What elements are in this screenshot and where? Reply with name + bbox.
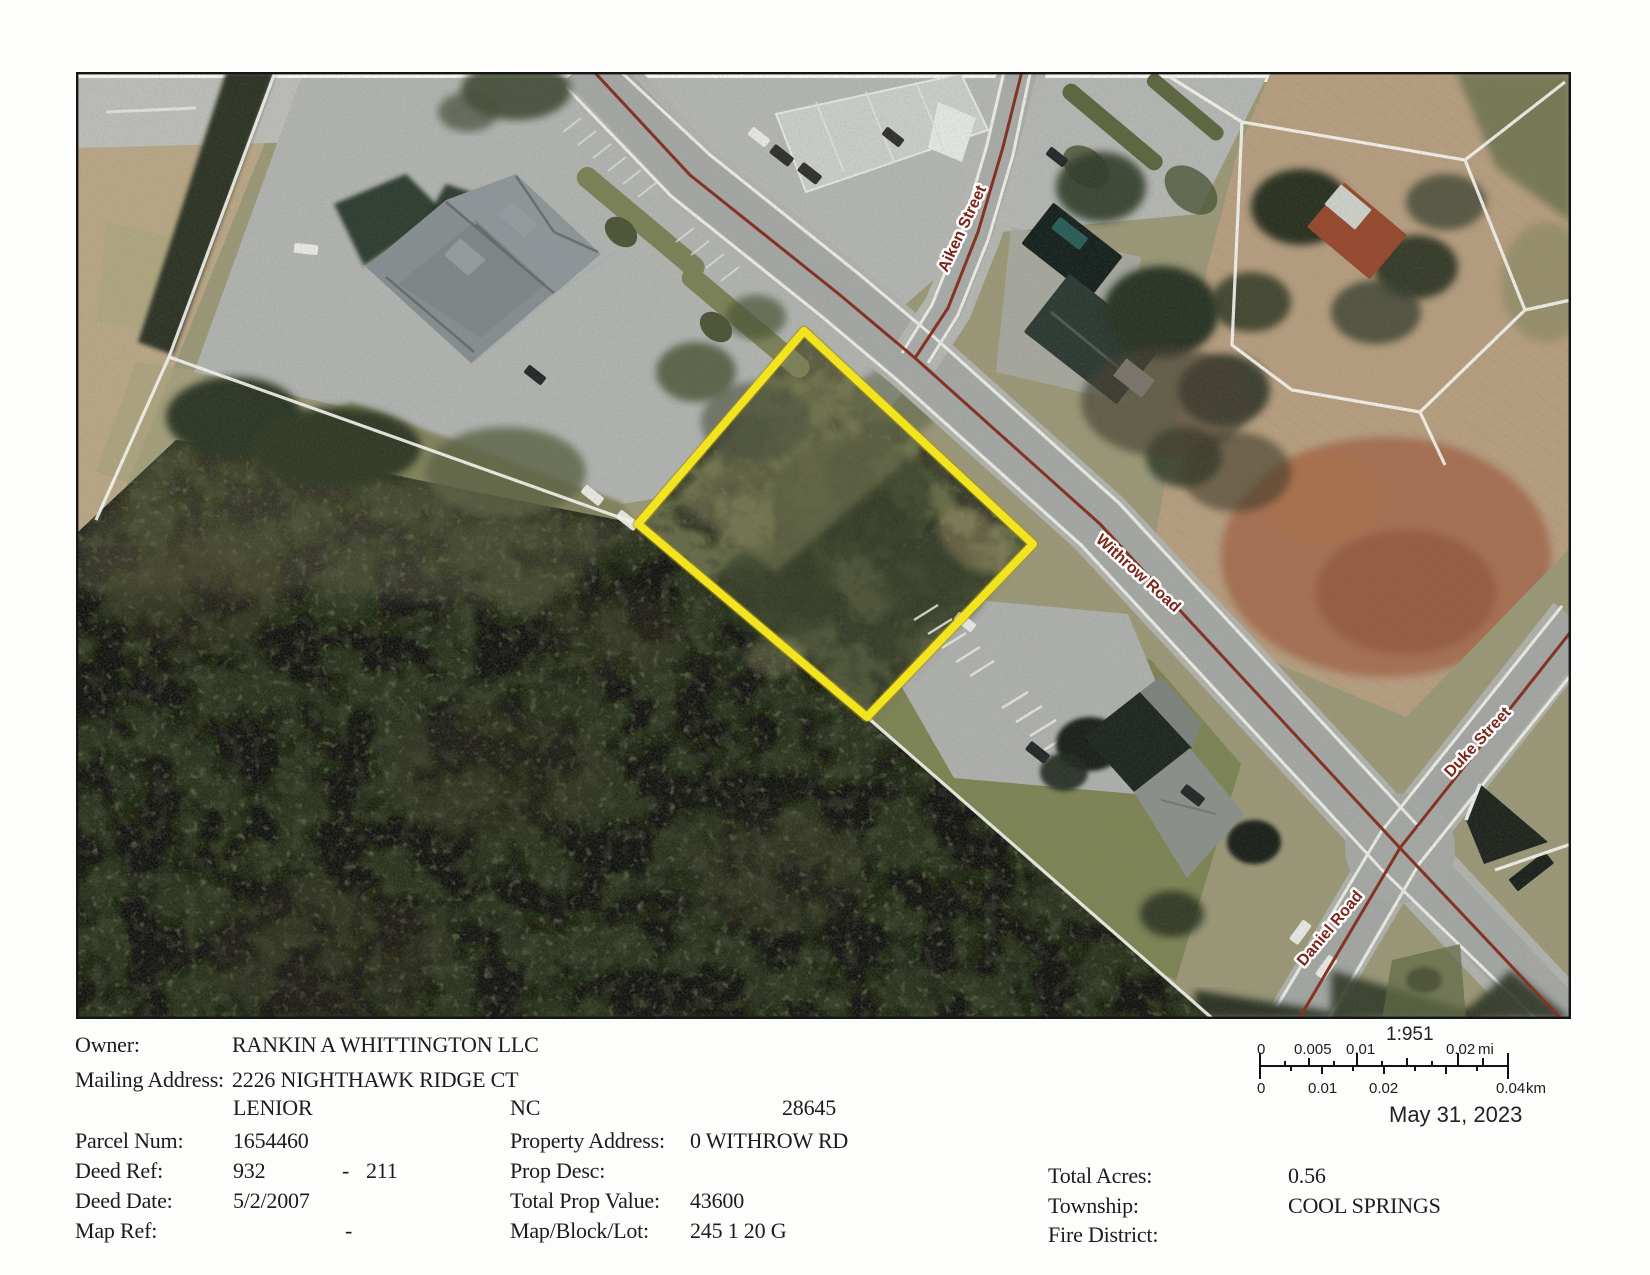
svg-text:0.005: 0.005 xyxy=(1294,1041,1332,1058)
svg-text:0: 0 xyxy=(1257,1041,1265,1058)
svg-text:0.01: 0.01 xyxy=(1308,1080,1337,1097)
svg-text:0: 0 xyxy=(1257,1080,1265,1097)
svg-text:0.02: 0.02 xyxy=(1369,1080,1398,1097)
svg-text:0.02: 0.02 xyxy=(1446,1041,1475,1058)
svg-text:0.01: 0.01 xyxy=(1346,1041,1375,1058)
svg-text:mi: mi xyxy=(1478,1041,1494,1058)
svg-text:km: km xyxy=(1526,1080,1546,1097)
svg-text:0.04: 0.04 xyxy=(1496,1080,1525,1097)
